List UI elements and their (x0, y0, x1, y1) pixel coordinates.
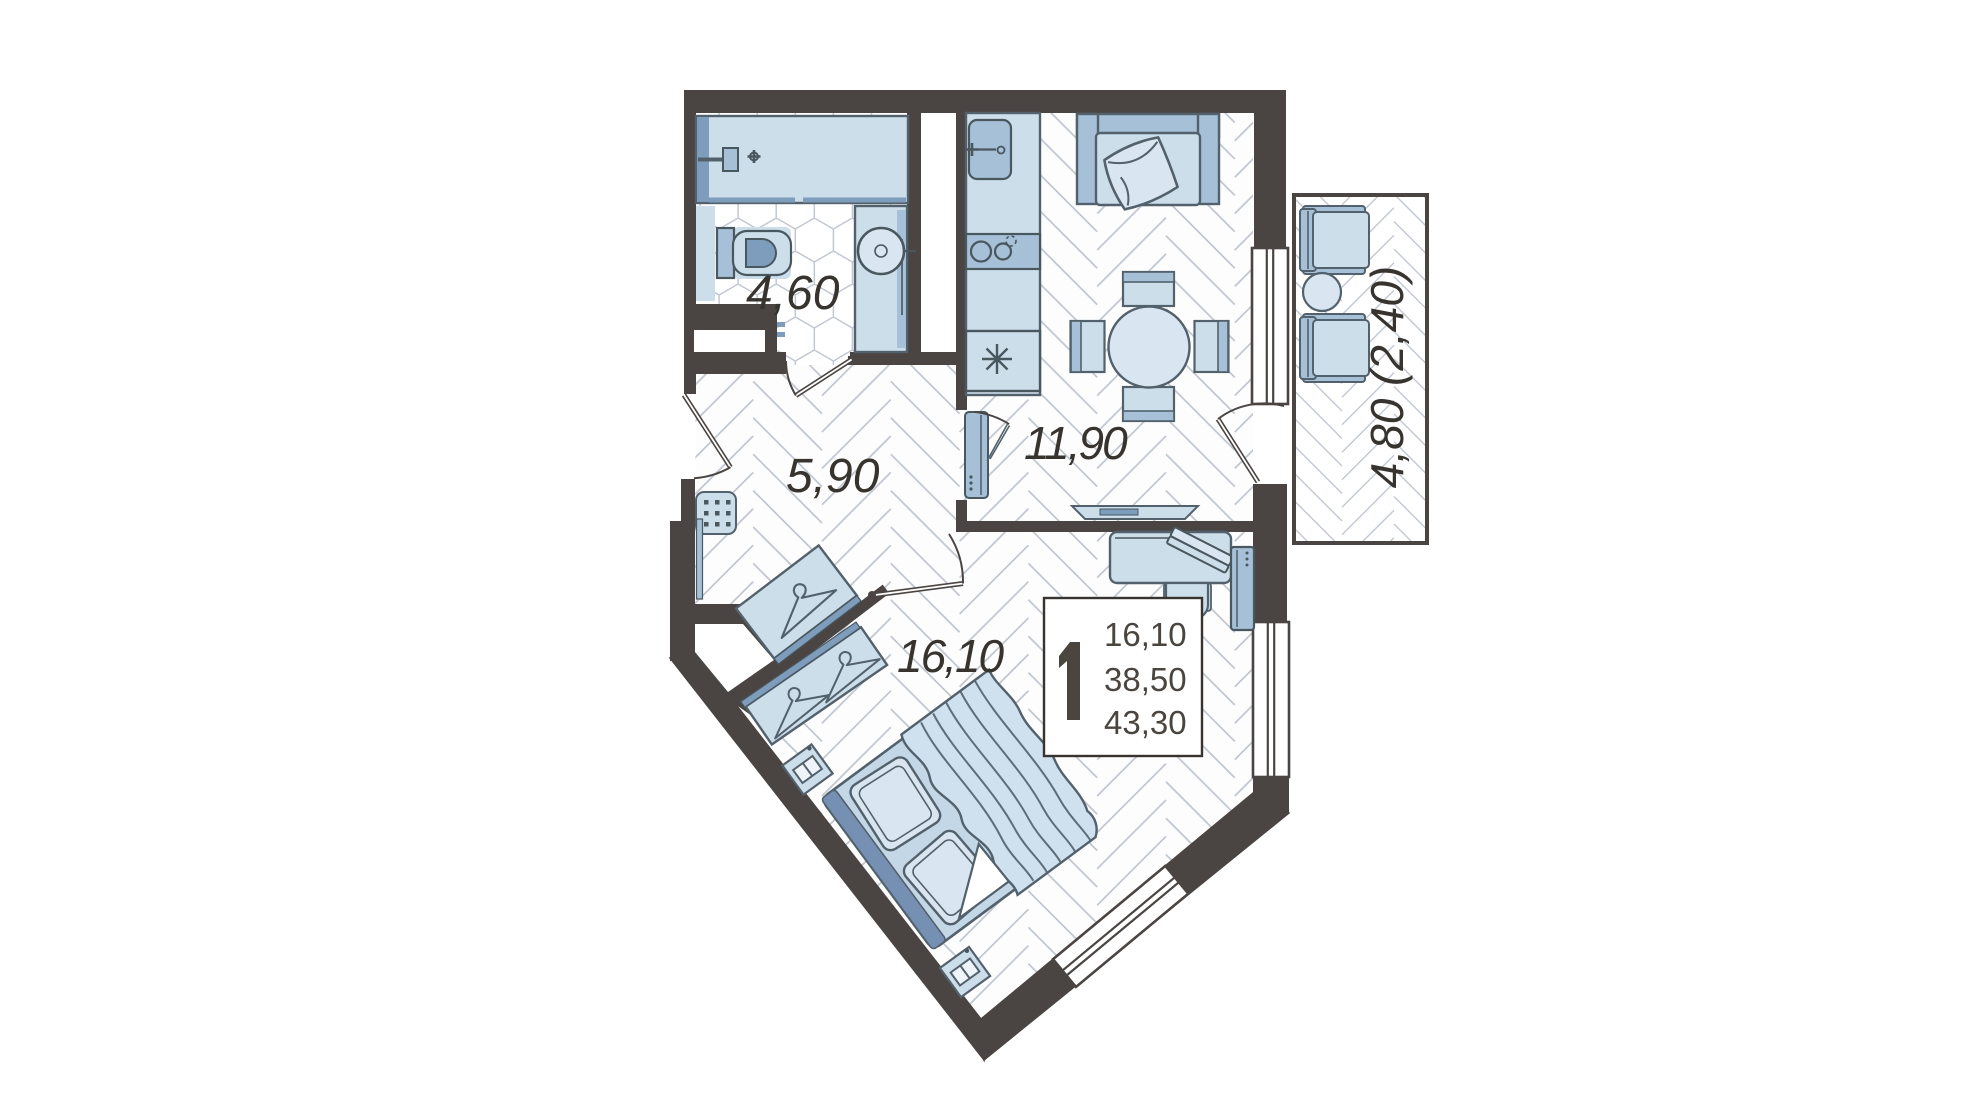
svg-text:16,10: 16,10 (1104, 616, 1187, 653)
svg-text:11,90: 11,90 (1024, 417, 1128, 469)
svg-text:4,60: 4,60 (746, 267, 840, 320)
svg-text:43,30: 43,30 (1104, 704, 1187, 741)
svg-text:38,50: 38,50 (1104, 661, 1187, 698)
svg-text:16,10: 16,10 (897, 630, 1005, 682)
svg-text:4,80 (2,40): 4,80 (2,40) (1361, 266, 1413, 488)
svg-text:5,90: 5,90 (786, 450, 880, 503)
